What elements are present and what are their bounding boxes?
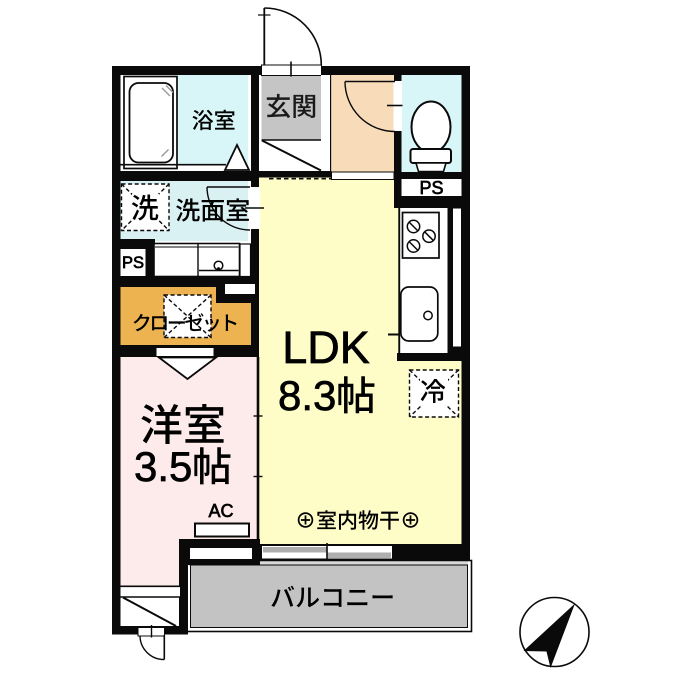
svg-text:PS: PS	[419, 178, 443, 198]
svg-text:PS: PS	[122, 254, 144, 272]
svg-text:LDK: LDK	[282, 322, 370, 373]
svg-text:AC: AC	[208, 501, 233, 521]
svg-text:8.3: 8.3	[278, 372, 336, 419]
svg-text:3.5: 3.5	[134, 443, 192, 490]
